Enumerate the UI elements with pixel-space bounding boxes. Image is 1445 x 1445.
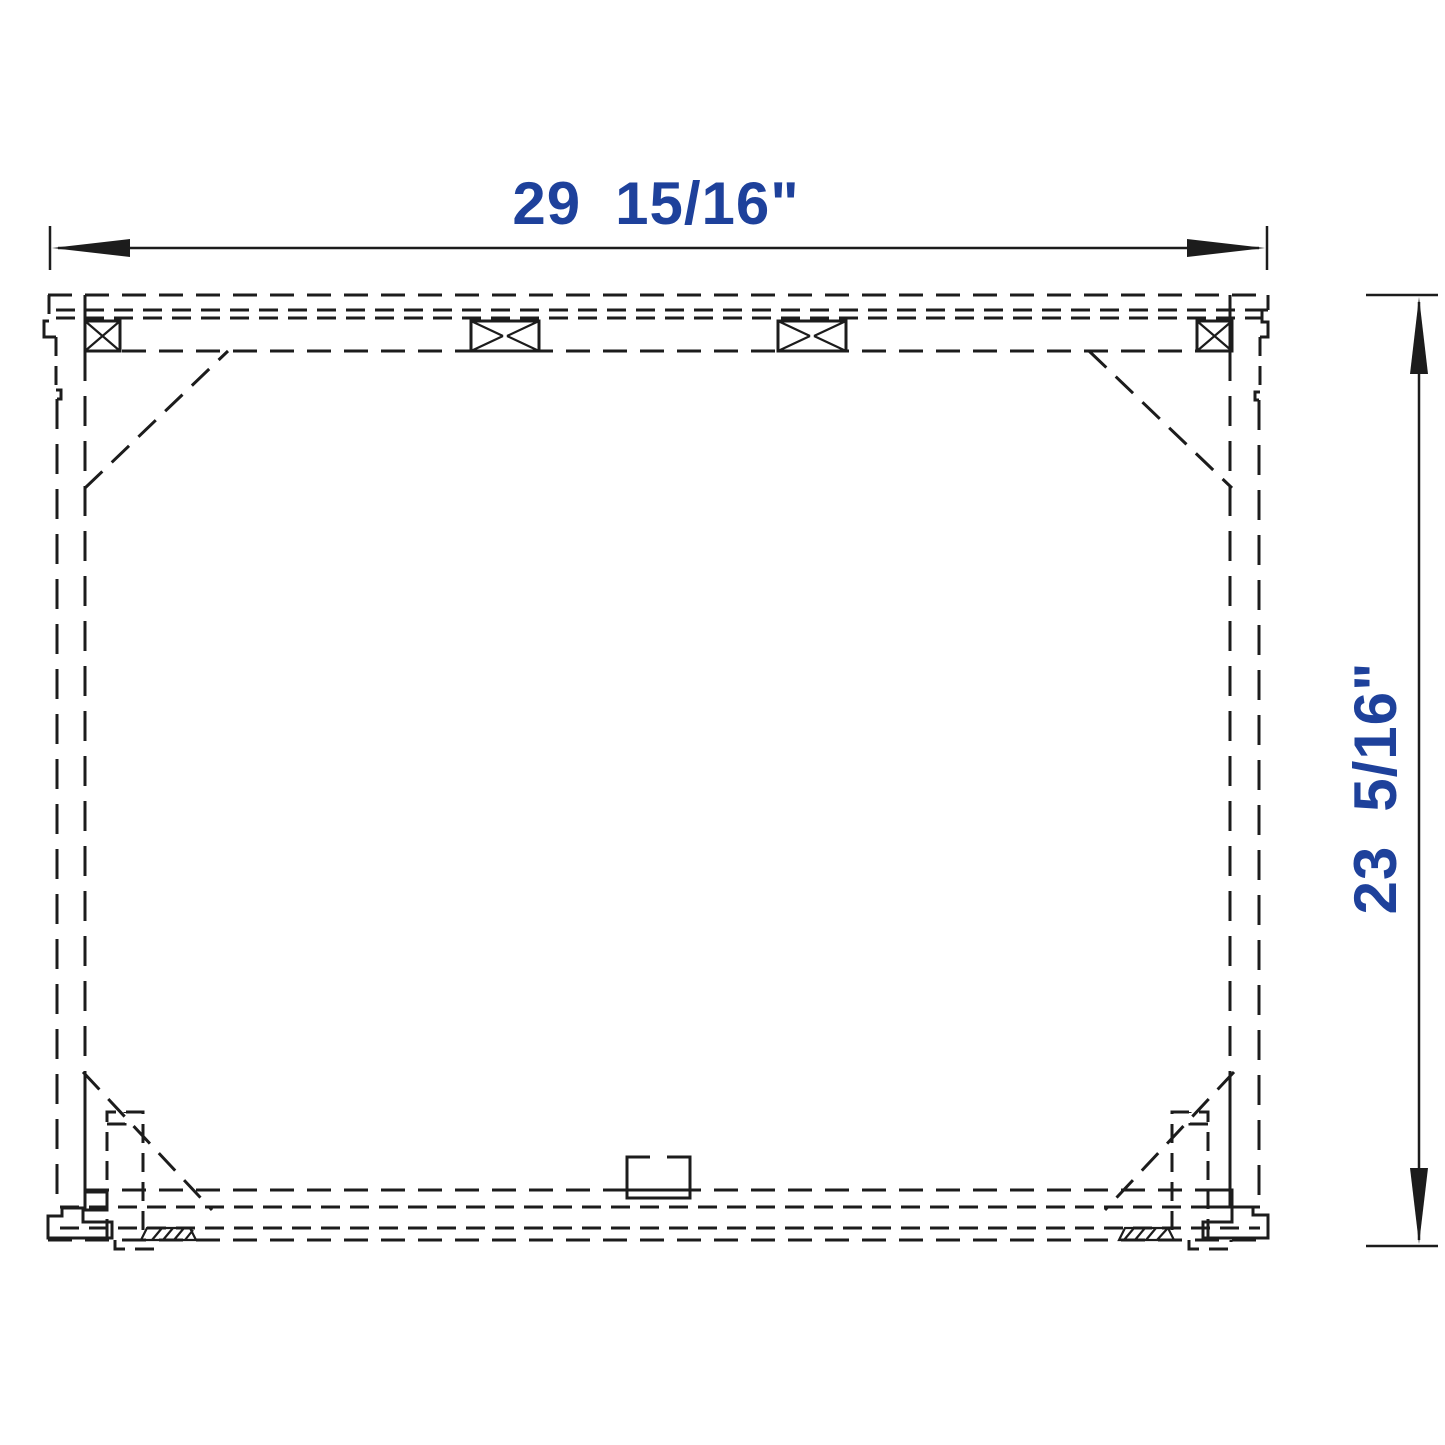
top-mid-left-cleat-block: [471, 321, 539, 351]
top-right-corner-brace: [1089, 351, 1232, 488]
height-dimension-label: 235/16": [1342, 662, 1409, 915]
bottom-left-glide: [141, 1228, 196, 1240]
bottom-right-foot: [1203, 1207, 1268, 1238]
right-outer-jog: [1255, 392, 1260, 400]
bottom-center-clip: [627, 1157, 690, 1198]
drawing-canvas: 2915/16" 235/16": [0, 0, 1445, 1445]
bottom-right-glide: [1119, 1228, 1174, 1240]
height-arrow-up-icon: [1410, 297, 1428, 374]
cleat-bowtie-icon: [471, 321, 539, 351]
left-outer-jog: [56, 390, 61, 399]
height-arrow-down-icon: [1410, 1168, 1428, 1244]
top-mid-right-cleat-block: [778, 321, 846, 351]
height-fraction: 5/16": [1342, 662, 1409, 812]
cleat-bowtie-icon: [778, 321, 846, 351]
cabinet-frame-linework: [44, 295, 1268, 1249]
glide-hatch-icon: [1124, 1228, 1167, 1240]
cleat-x-mark-icon: [1197, 321, 1232, 351]
width-dimension: 2915/16": [50, 170, 1267, 270]
cleat-x-mark-icon: [85, 321, 120, 351]
width-arrow-left-icon: [52, 239, 130, 257]
clip-outline: [627, 1157, 690, 1198]
left-outer-notch: [44, 321, 56, 337]
cad-drawing: 2915/16" 235/16": [0, 0, 1445, 1445]
top-left-corner-brace: [85, 351, 228, 488]
top-left-cleat-block: [85, 321, 120, 351]
glide-hatch-icon: [152, 1228, 193, 1240]
bottom-left-foot: [48, 1208, 112, 1238]
width-whole-number: 29: [512, 170, 581, 237]
bottom-right-corner-fitting: [1208, 1190, 1232, 1207]
width-fraction: 15/16": [615, 170, 800, 237]
bottom-right-leg-notch: [1190, 1112, 1208, 1124]
right-outer-notch: [1260, 310, 1268, 337]
width-dimension-label: 2915/16": [512, 170, 799, 237]
height-dimension: 235/16": [1342, 295, 1438, 1246]
top-right-cleat-block: [1197, 321, 1232, 351]
height-whole-number: 23: [1342, 846, 1409, 915]
width-arrow-right-icon: [1187, 239, 1265, 257]
